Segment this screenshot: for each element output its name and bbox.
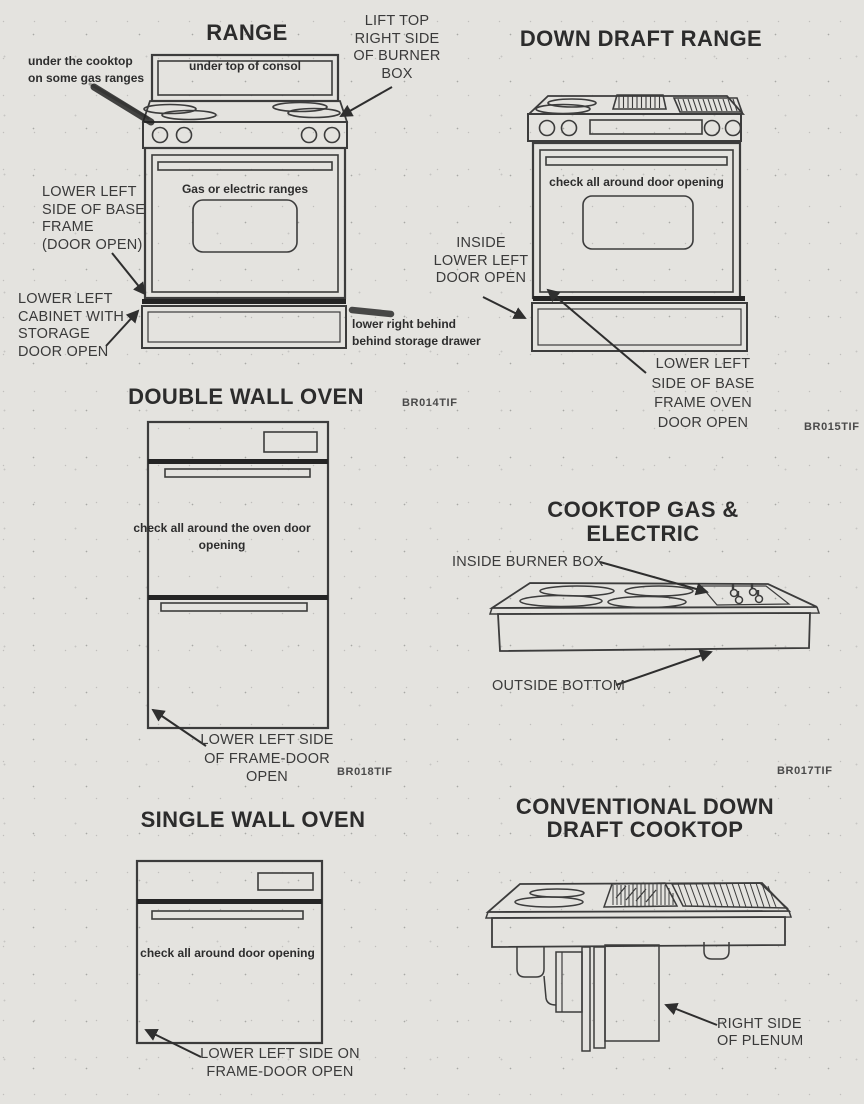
label-lift-top-burner-box: LIFT TOP RIGHT SIDE OF BURNER BOX — [347, 13, 447, 84]
knob — [562, 121, 577, 136]
marker-smudge-arrow-feather — [90, 84, 148, 118]
cddc-body — [492, 917, 785, 947]
burner — [515, 897, 583, 907]
section-title-down-draft-range: DOWN DRAFT RANGE — [511, 27, 771, 51]
arrow-inside-burner-box — [600, 562, 707, 592]
cddc-duct-strip — [582, 947, 590, 1051]
knob — [325, 128, 340, 143]
cddc-duct-strip — [594, 947, 605, 1048]
cddc-left-block — [556, 952, 582, 1012]
range-storage-drawer-inner — [148, 312, 340, 342]
section-title-conventional-cooktop: CONVENTIONAL DOWN DRAFT COOKTOP — [495, 795, 795, 842]
cddc-left-tab — [517, 947, 544, 977]
grill-hatch — [678, 883, 776, 907]
cddc-plenum-box — [605, 945, 659, 1041]
burner — [273, 103, 327, 112]
scanned-diagram-page: RANGE under the cooktop on some gas rang… — [0, 0, 864, 1104]
label-check-door-opening: check all around door opening — [140, 945, 315, 962]
burner — [536, 105, 590, 114]
ddr-vent — [613, 95, 666, 109]
ddr-oven-body — [533, 143, 740, 298]
vent-hatch — [613, 884, 673, 906]
cddc-left-curve — [544, 976, 556, 1005]
grill-hatch — [678, 99, 737, 111]
range-oven-door — [152, 155, 338, 292]
cooktop-gas-electric-illustration — [490, 562, 819, 685]
burner — [288, 109, 340, 118]
label-outside-bottom: OUTSIDE BOTTOM — [492, 678, 625, 696]
burner — [625, 586, 693, 596]
label-lower-right-drawer: lower right behind behind storage drawer — [352, 316, 481, 351]
separator-bar — [148, 459, 328, 464]
figure-code-br014tif: BR014TIF — [402, 397, 458, 409]
swo-handle — [152, 911, 303, 919]
separator-bar — [533, 296, 745, 301]
ddr-drawer — [532, 303, 747, 351]
swo-control-panel — [258, 873, 313, 890]
label-under-top-of-console: under top of consol — [158, 58, 332, 75]
knob — [750, 589, 757, 596]
knob — [302, 128, 317, 143]
separator-bar — [137, 899, 322, 904]
label-lower-left-frame-door: LOWER LEFT SIDE ON FRAME-DOOR OPEN — [195, 1046, 365, 1082]
label-lower-left-cabinet: LOWER LEFT CABINET WITH STORAGE DOOR OPE… — [18, 291, 124, 362]
label-lower-left-base-frame-oven: LOWER LEFT SIDE OF BASE FRAME OVEN DOOR … — [648, 355, 758, 433]
cddc-grill — [672, 883, 787, 908]
vent-cross-hatch — [616, 886, 656, 902]
arrow-base-frame — [112, 253, 145, 294]
vent-hatch — [619, 96, 660, 108]
knob — [726, 121, 741, 136]
figure-code-br018tif: BR018TIF — [337, 766, 393, 778]
knob — [177, 128, 192, 143]
knob — [705, 121, 720, 136]
burner — [548, 99, 596, 107]
ddr-door-handle — [546, 157, 727, 165]
arrow-lift-top — [341, 87, 392, 116]
label-right-side-plenum: RIGHT SIDE OF PLENUM — [717, 1016, 803, 1050]
range-door-window — [193, 200, 297, 252]
label-lower-left-base-frame: LOWER LEFT SIDE OF BASE FRAME (DOOR OPEN… — [42, 184, 145, 255]
burner — [530, 889, 584, 897]
section-title-double-wall-oven: DOUBLE WALL OVEN — [126, 385, 366, 409]
ddr-display — [590, 120, 702, 134]
section-title-cooktop-gas-electric: COOKTOP GAS & ELECTRIC — [493, 498, 793, 546]
arrow-inside-lower-left — [483, 297, 525, 318]
dwo-control-panel — [264, 432, 317, 452]
label-inside-burner-box: INSIDE BURNER BOX — [452, 554, 604, 572]
separator-bar — [142, 299, 346, 304]
knob — [736, 597, 743, 604]
down-draft-range-illustration — [483, 95, 747, 373]
dwo-lower-handle — [161, 603, 307, 611]
burner — [520, 596, 602, 607]
burner — [608, 597, 686, 608]
knob — [756, 596, 763, 603]
dwo-upper-handle — [165, 469, 310, 477]
ddr-control-panel — [528, 114, 741, 141]
section-title-range: RANGE — [157, 21, 337, 45]
arrow-right-side-plenum — [666, 1005, 717, 1025]
ddr-door-window — [583, 196, 693, 249]
arrow-outside-bottom — [616, 652, 711, 685]
knob — [731, 590, 738, 597]
range-door-handle — [158, 162, 332, 170]
label-inside-lower-left: INSIDE LOWER LEFT DOOR OPEN — [426, 235, 536, 288]
separator-bar — [148, 595, 328, 600]
section-title-single-wall-oven: SINGLE WALL OVEN — [133, 808, 373, 832]
figure-code-br017tif: BR017TIF — [777, 765, 833, 777]
label-gas-or-electric: Gas or electric ranges — [145, 181, 345, 198]
ddr-oven-door — [540, 150, 733, 292]
figure-code-br015tif: BR015TIF — [804, 421, 860, 433]
knob — [540, 121, 555, 136]
knob — [153, 128, 168, 143]
label-lower-left-frame-door: LOWER LEFT SIDE OF FRAME-DOOR OPEN — [192, 731, 342, 787]
ddr-drawer-inner — [538, 309, 741, 345]
burner — [540, 586, 614, 596]
label-check-oven-door-opening: check all around the oven door opening — [113, 520, 331, 555]
label-check-door-opening: check all around door opening — [540, 174, 733, 191]
double-wall-oven-illustration — [148, 422, 328, 746]
cge-burner-box-panel — [701, 586, 789, 605]
dwo-cabinet — [148, 422, 328, 728]
label-under-cooktop: under the cooktop on some gas ranges — [28, 53, 144, 88]
marker-smudge — [352, 310, 391, 314]
cge-body — [498, 613, 810, 651]
